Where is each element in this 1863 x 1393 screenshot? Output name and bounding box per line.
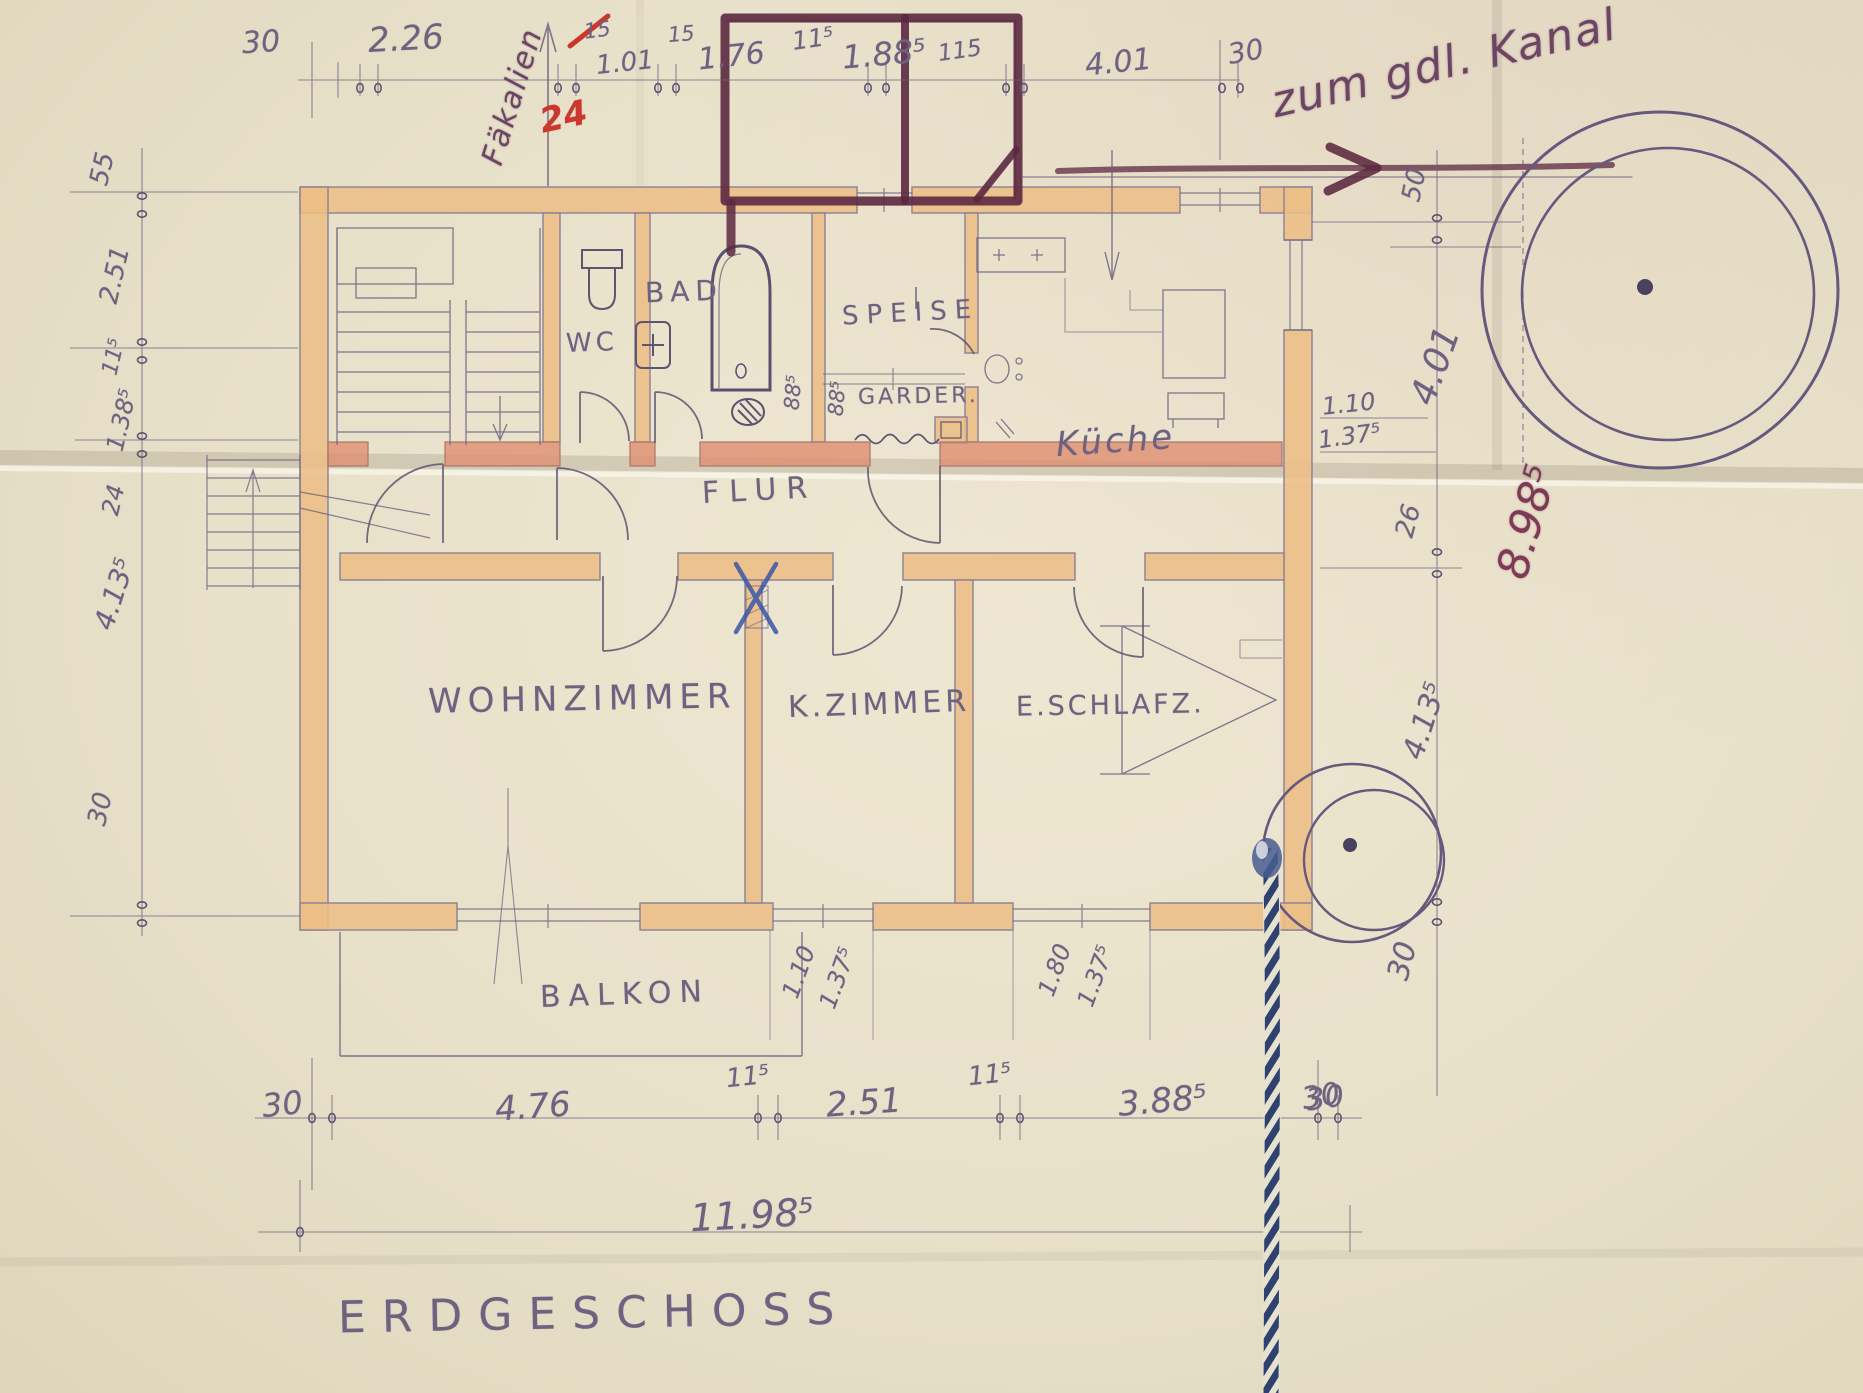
dim-label: 1.01 [595,47,655,79]
page-title: ERDGESCHOSS [338,1288,851,1341]
stairwell [337,228,540,445]
dim-label: 1.10 [1321,389,1377,418]
dim-label: 11⁵ [967,1060,1013,1090]
dim-label: 88⁵ [782,374,806,411]
dim-label: 3.88⁵ [1117,1080,1209,1122]
dim-label: 15 [667,23,695,46]
floor-drain-icon [732,399,764,425]
dim-label: 55 [86,150,119,188]
dim-label: 115 [937,37,984,66]
kitchen-fixtures [977,238,1225,438]
dim-total-label: 11.98⁵ [689,1193,815,1237]
sewer-line-arrow [1022,147,1632,191]
dim-label: 30 [241,27,281,60]
red-mark: 24 [537,95,590,138]
dim-label: 1.76 [697,39,767,76]
dim-label: 26 [1392,502,1426,541]
room-label-flur: FLUR [701,473,818,509]
dim-label: 4.01 [1084,45,1154,82]
room-label-kueche: Küche [1055,420,1176,462]
dim-label: 24 [98,482,128,517]
dim-label: 2.51 [825,1083,903,1122]
dim-label: 30 [84,790,117,828]
room-label-speise: SPEISE [841,296,979,329]
room-label-bad: BAD [645,277,724,308]
room-label-wc: WC [566,329,619,357]
dim-label: 30 [260,1086,304,1122]
dim-label: 2.26 [367,20,444,58]
dim-label: 30 [1300,1079,1343,1115]
room-label-garderobe: GARDER. [858,385,979,409]
bathtub-fixture [712,246,770,390]
room-label-balkon: BALKON [540,977,711,1013]
dim-label: 1.88⁵ [841,34,928,73]
room-label-eschlafz: E.SCHLAFZ. [1016,690,1205,720]
toilet-fixture [582,250,622,309]
room-label-wohnzimmer: WOHNZIMMER [428,679,737,718]
dim-label: 11⁵ [725,1062,771,1092]
room-label-kzimmer: K.ZIMMER [788,687,971,723]
dim-label: 30 [1226,35,1266,69]
dim-label: 50 [1398,166,1430,204]
dim-label: 88⁵ [826,380,850,417]
chimney-triangle [494,788,522,984]
dim-label: 11⁵ [790,23,835,54]
building-walls [300,187,1312,930]
scanned-floorplan-page: 30 2.26 15 1.01 15 1.76 11⁵ 1.88⁵ 115 4.… [0,0,1863,1393]
dim-label: 4.76 [494,1087,572,1126]
dimension-ticks [138,84,1442,1237]
dim-label: 15 [583,18,612,43]
